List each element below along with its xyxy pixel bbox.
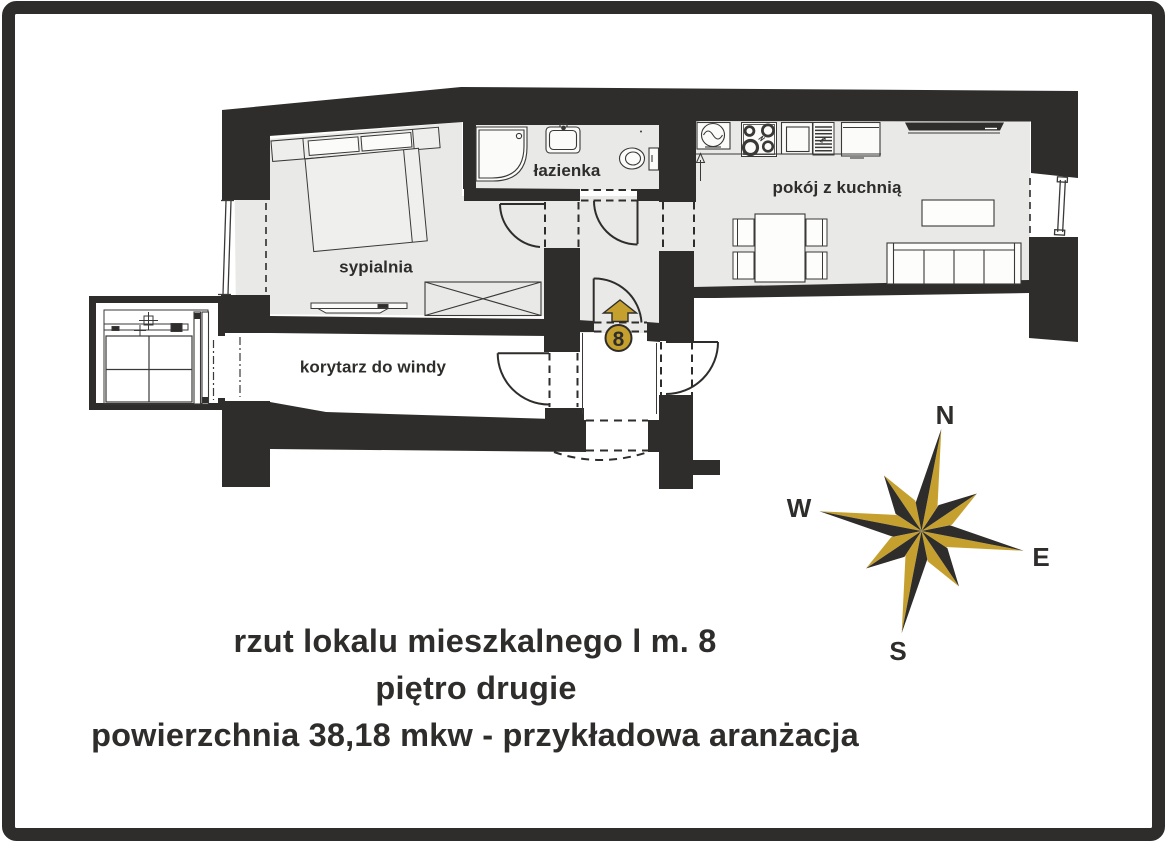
svg-text:piętro drugie: piętro drugie [375, 670, 576, 706]
svg-text:sypialnia: sypialnia [339, 258, 413, 277]
svg-text:8: 8 [613, 328, 625, 351]
svg-text:N: N [936, 400, 955, 430]
svg-text:pokój z kuchnią: pokój z kuchnią [772, 178, 901, 197]
svg-text:łazienka: łazienka [534, 161, 601, 180]
svg-text:W: W [787, 493, 812, 523]
svg-text:E: E [1032, 542, 1049, 572]
svg-text:rzut lokalu mieszkalnego l m.: rzut lokalu mieszkalnego l m. 8 [233, 623, 716, 659]
svg-text:powierzchnia 38,18 mkw - przyk: powierzchnia 38,18 mkw - przykładowa ara… [91, 717, 860, 753]
svg-text:korytarz do windy: korytarz do windy [300, 358, 447, 377]
svg-text:S: S [889, 636, 906, 666]
